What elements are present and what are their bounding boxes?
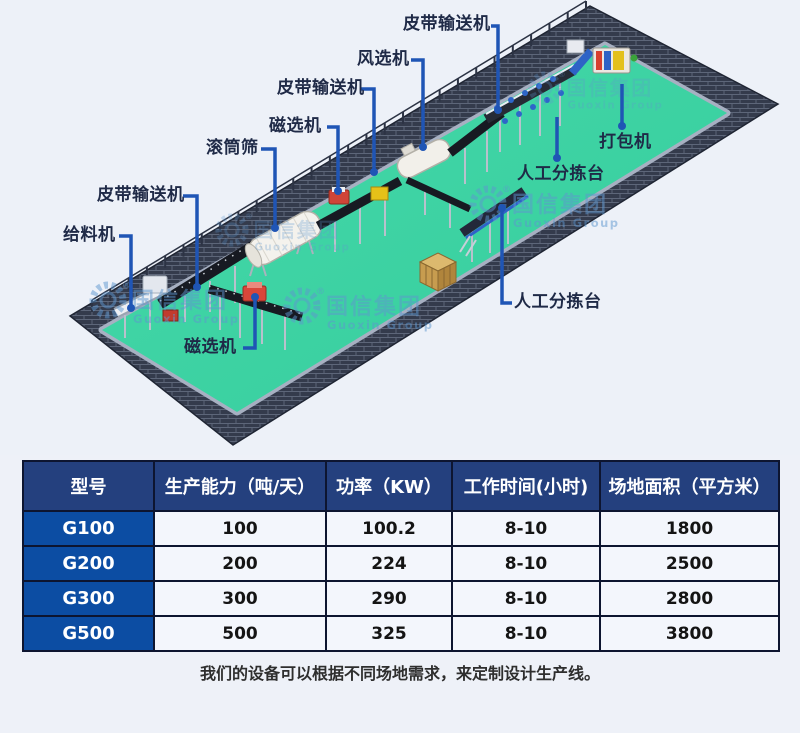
chute-box: [371, 187, 388, 200]
svg-text:Guoxin Group: Guoxin Group: [255, 242, 351, 254]
connector-dot-feeder: [127, 304, 135, 312]
model-cell: G500: [23, 616, 154, 651]
label-belt-conveyor-top: 皮带输送机: [403, 16, 491, 33]
svg-text:国信集团: 国信集团: [326, 294, 422, 320]
label-belt-conveyor-mid: 皮带输送机: [277, 80, 365, 97]
value-cell: 2800: [600, 581, 779, 616]
label-magnetic-separator-lower: 磁选机: [184, 339, 237, 356]
value-cell: 8-10: [452, 511, 600, 546]
connector-dot-belt-conveyor-top: [494, 106, 502, 114]
svg-text:Guoxin Group: Guoxin Group: [568, 100, 664, 112]
label-sorting-station-lower: 人工分拣台: [514, 294, 602, 311]
svg-text:®: ®: [245, 211, 253, 221]
connector-dot-sorting-station-lower: [498, 204, 506, 212]
table-row: G3003002908-102800: [23, 581, 779, 616]
connector-dot-belt-conveyor-mid: [370, 168, 378, 176]
label-sorting-station-upper: 人工分拣台: [517, 166, 605, 183]
connector-dot-air-separator: [419, 143, 427, 151]
label-air-separator: 风选机: [357, 51, 410, 68]
value-cell: 8-10: [452, 546, 600, 581]
table-header-cell: 场地面积（平方米）: [600, 461, 779, 511]
value-cell: 100: [154, 511, 326, 546]
customization-note: 我们的设备可以根据不同场地需求，来定制设计生产线。: [0, 660, 800, 684]
label-baler: 打包机: [599, 134, 652, 151]
model-cell: G100: [23, 511, 154, 546]
connector-dot-baler: [618, 122, 626, 130]
connector-dot-sorting-station-upper: [553, 154, 561, 162]
value-cell: 500: [154, 616, 326, 651]
label-drum-screen: 滚筒筛: [206, 140, 259, 157]
value-cell: 8-10: [452, 581, 600, 616]
svg-text:国信集团: 国信集团: [254, 219, 340, 242]
value-cell: 8-10: [452, 616, 600, 651]
page: ®国信集团Guoxin Group®国信集团Guoxin Group®国信集团G…: [0, 0, 800, 733]
table-header-cell: 工作时间(小时): [452, 461, 600, 511]
label-magnetic-separator-upper: 磁选机: [269, 118, 322, 135]
svg-text:Guoxin Group: Guoxin Group: [513, 216, 620, 230]
value-cell: 325: [326, 616, 452, 651]
connector-dot-belt-conveyor-left: [193, 283, 201, 291]
value-cell: 200: [154, 546, 326, 581]
production-line-diagram: ®国信集团Guoxin Group®国信集团Guoxin Group®国信集团G…: [0, 0, 800, 455]
svg-text:Guoxin Group: Guoxin Group: [327, 318, 434, 332]
label-feeder: 给料机: [63, 227, 116, 244]
connector-dot-magnetic-separator-lower: [251, 293, 259, 301]
spec-table: 型号生产能力（吨/天）功率（KW）工作时间(小时)场地面积（平方米） G1001…: [22, 460, 780, 652]
label-belt-conveyor-left: 皮带输送机: [97, 187, 185, 204]
svg-text:®: ®: [502, 185, 511, 195]
table-header-row: 型号生产能力（吨/天）功率（KW）工作时间(小时)场地面积（平方米）: [23, 461, 779, 511]
table-header-cell: 生产能力（吨/天）: [154, 461, 326, 511]
svg-text:®: ®: [558, 69, 566, 79]
table-row: G100100100.28-101800: [23, 511, 779, 546]
value-cell: 100.2: [326, 511, 452, 546]
value-cell: 3800: [600, 616, 779, 651]
table-header-cell: 功率（KW）: [326, 461, 452, 511]
connector-dot-drum-screen: [271, 224, 279, 232]
connector-dot-magnetic-separator-upper: [334, 187, 342, 195]
svg-text:®: ®: [316, 287, 325, 297]
table-header-cell: 型号: [23, 461, 154, 511]
value-cell: 2500: [600, 546, 779, 581]
value-cell: 224: [326, 546, 452, 581]
svg-text:Guoxin Group: Guoxin Group: [133, 312, 240, 326]
table-row: G2002002248-102500: [23, 546, 779, 581]
value-cell: 300: [154, 581, 326, 616]
table-row: G5005003258-103800: [23, 616, 779, 651]
svg-text:国信集团: 国信集团: [132, 288, 228, 314]
value-cell: 1800: [600, 511, 779, 546]
svg-text:国信集团: 国信集团: [567, 77, 653, 100]
svg-text:国信集团: 国信集团: [512, 192, 608, 218]
model-cell: G300: [23, 581, 154, 616]
model-cell: G200: [23, 546, 154, 581]
value-cell: 290: [326, 581, 452, 616]
